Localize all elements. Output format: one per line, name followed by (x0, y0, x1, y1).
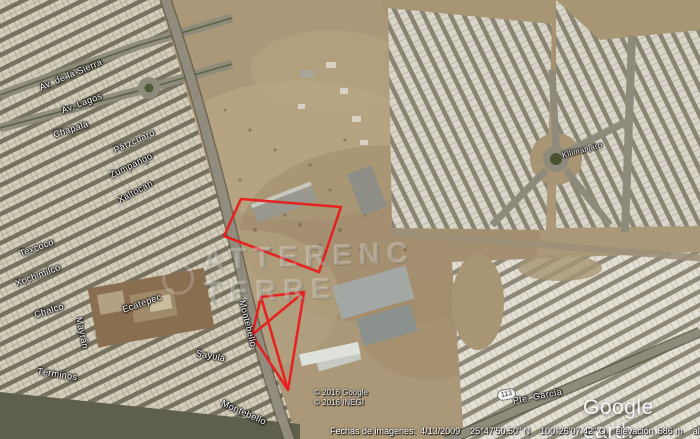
copyright-attribution: © 2016 Google © 2016 INEGI (314, 388, 368, 408)
eye-altitude-readout: alt. ojo 1.25 km (693, 426, 700, 436)
dirt-gap-2 (518, 255, 602, 281)
satellite-imagery (0, 0, 700, 439)
elevation-value: 586 m (658, 426, 683, 436)
copyright-inegi: © 2016 INEGI (314, 398, 368, 408)
elevation-label: elevación (616, 426, 654, 436)
status-bar: Fechas de imágenes: 4/13/2009 25°47'50.5… (330, 425, 696, 436)
imagery-date-value: 4/13/2009 (420, 426, 460, 436)
satellite-map[interactable]: ATTERENC TERRE Av. de la Sierra Av. Lago… (0, 0, 700, 439)
longitude-readout: 100°26'07.42" O (540, 426, 606, 436)
latitude-readout: 25°47'50.50" N (470, 426, 530, 436)
copyright-google: © 2016 Google (314, 388, 368, 398)
imagery-date: Fechas de imágenes: 4/13/2009 (330, 426, 460, 436)
dirt-gap-1 (452, 254, 504, 350)
elevation-readout: elevación 586 m (616, 426, 683, 436)
residential-top-right-a (388, 8, 552, 230)
eye-altitude-label: alt. ojo (693, 426, 700, 436)
imagery-date-label: Fechas de imágenes: (330, 426, 416, 436)
